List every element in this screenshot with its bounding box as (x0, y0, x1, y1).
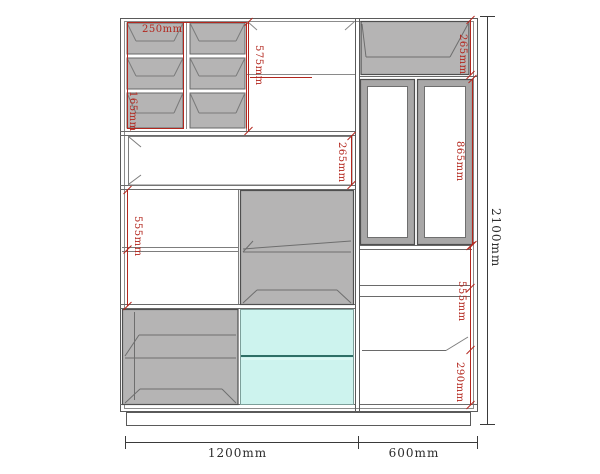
dim-label-total-height: 2100mm (491, 208, 501, 267)
gray-shelf-cabinet-bottom (123, 310, 239, 405)
gray-shelf-cabinet-middle (241, 191, 354, 305)
dim-label-left-lower-section-height: 555mm (132, 216, 142, 257)
middle-open-compartment (129, 137, 353, 186)
pigeonhole-column-b (187, 21, 246, 129)
dim-label-shelf-cell-height: 165mm (127, 91, 137, 132)
dim-label-right-bottom-height: 290mm (454, 362, 464, 403)
dim-label-top-right-box-height: 265mm (457, 34, 467, 75)
dim-label-right-section-width: 600mm (373, 448, 455, 458)
dim-label-shelf-col-width: 250mm (142, 25, 183, 35)
cabinet-linework (0, 0, 600, 474)
dim-label-right-lower-section-height: 555mm (456, 281, 466, 322)
dim-label-middle-open-height: 265mm (336, 142, 346, 183)
cabinet-elevation-drawing: 250mm 165mm 575mm 265mm 555mm 265mm 865m… (0, 0, 600, 474)
dim-label-door-height: 865mm (454, 141, 464, 182)
dim-label-top-section-height: 575mm (253, 45, 263, 86)
tall-door-left (361, 80, 415, 245)
dim-label-left-section-width: 1200mm (180, 448, 295, 458)
top-right-open-box (361, 22, 469, 75)
plinth (127, 413, 471, 426)
cyan-drawer-fronts (241, 310, 354, 405)
